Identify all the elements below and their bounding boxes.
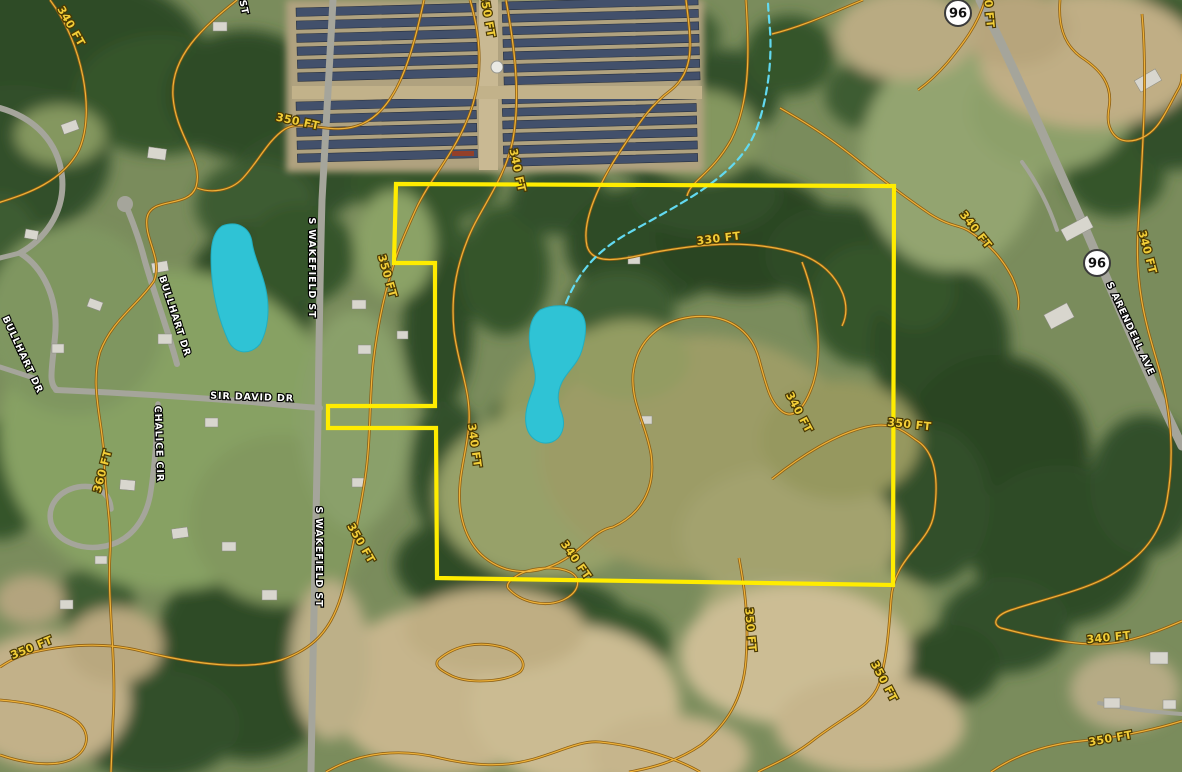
building — [205, 418, 218, 427]
building — [352, 300, 366, 309]
cul-de-sac — [117, 196, 133, 212]
map-screenshot: 340 FT350 FT350 FT340 FT330 FT350 FT340 … — [0, 0, 1182, 772]
building — [222, 542, 236, 551]
street-name-label: S WAKEFIELD ST — [313, 506, 324, 607]
building — [147, 147, 166, 160]
building — [52, 344, 64, 353]
building — [358, 345, 371, 354]
building — [1104, 698, 1120, 708]
map-canvas: 340 FT350 FT350 FT340 FT330 FT350 FT340 … — [0, 0, 1182, 772]
route-shield-number: 96 — [1088, 257, 1106, 272]
route-shield-number: 96 — [949, 7, 967, 22]
building — [95, 556, 107, 564]
building — [120, 479, 136, 490]
route-shield-96: 96 — [945, 0, 971, 26]
building — [158, 334, 172, 344]
building — [262, 590, 277, 600]
building — [1163, 700, 1176, 709]
building — [1150, 652, 1168, 664]
building — [213, 22, 227, 31]
building — [397, 331, 408, 339]
route-shield-96: 96 — [1084, 250, 1110, 276]
street-name-label: S WAKEFIELD ST — [306, 217, 317, 318]
building — [171, 527, 188, 539]
building — [24, 229, 38, 240]
building — [60, 600, 73, 609]
water-tank — [491, 61, 503, 73]
